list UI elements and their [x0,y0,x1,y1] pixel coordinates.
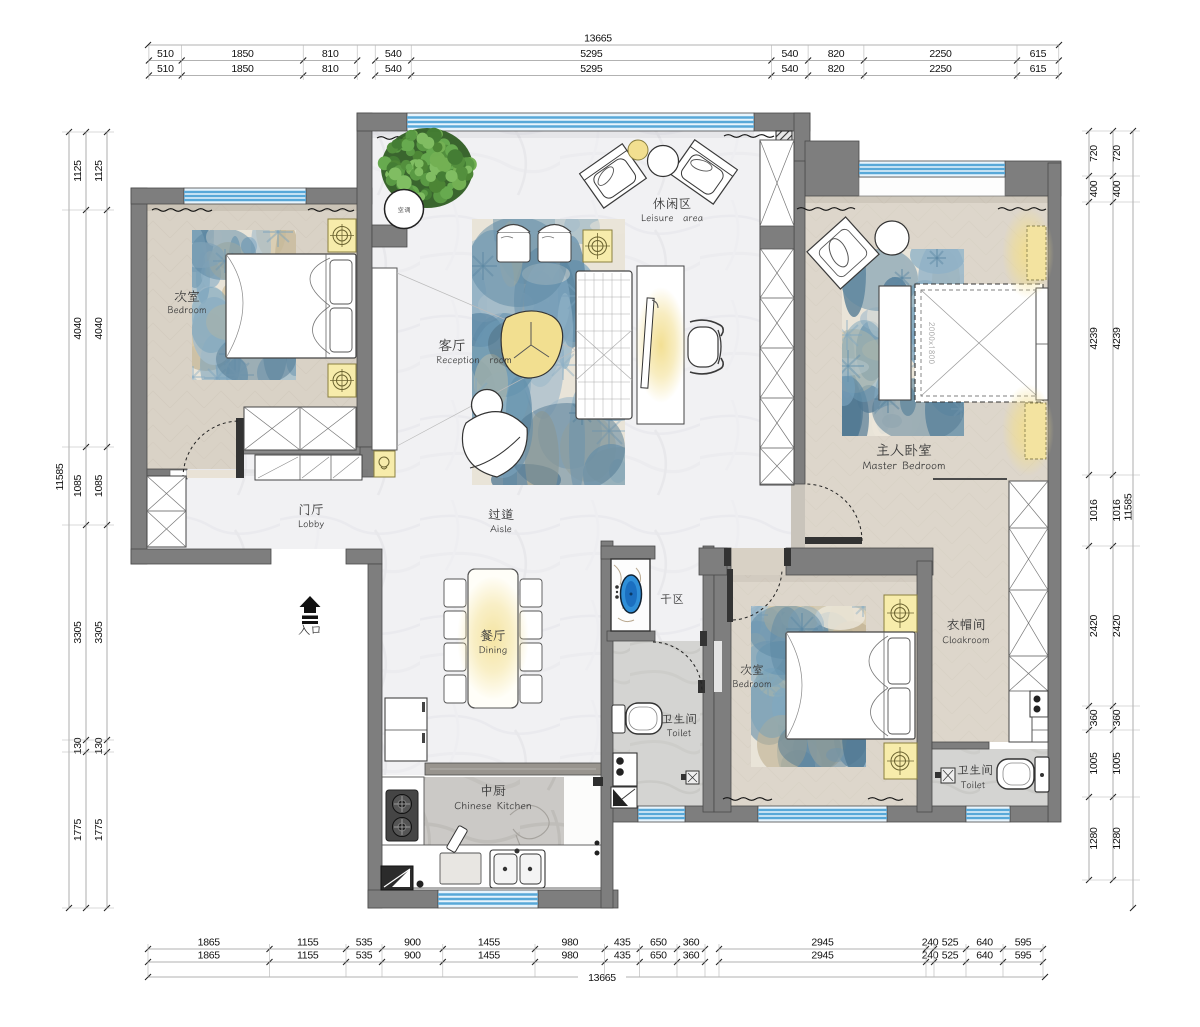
svg-text:720: 720 [1088,145,1100,162]
svg-text:595: 595 [1015,937,1032,949]
svg-text:1005: 1005 [1111,752,1123,775]
svg-text:640: 640 [976,937,993,949]
svg-text:435: 435 [614,937,631,949]
svg-text:435: 435 [614,950,631,962]
svg-text:1280: 1280 [1111,827,1123,850]
svg-text:1280: 1280 [1088,827,1100,850]
svg-text:980: 980 [562,950,579,962]
svg-text:240: 240 [922,950,939,962]
svg-text:3305: 3305 [72,621,84,644]
svg-text:360: 360 [1111,709,1123,726]
svg-text:2250: 2250 [929,48,952,60]
svg-text:510: 510 [157,48,174,60]
svg-text:595: 595 [1015,950,1032,962]
svg-text:1155: 1155 [297,950,319,962]
svg-text:640: 640 [976,950,993,962]
svg-text:615: 615 [1030,63,1047,75]
svg-text:1775: 1775 [93,818,105,841]
svg-text:1155: 1155 [297,937,319,949]
svg-text:400: 400 [1111,180,1123,197]
svg-text:5295: 5295 [580,63,603,75]
svg-text:2420: 2420 [1088,614,1100,637]
svg-text:3305: 3305 [93,621,105,644]
svg-text:360: 360 [683,937,700,949]
svg-text:1850: 1850 [231,48,254,60]
svg-text:240: 240 [922,937,939,949]
svg-text:1775: 1775 [72,818,84,841]
svg-text:2945: 2945 [811,937,834,949]
svg-text:535: 535 [356,950,373,962]
svg-text:2250: 2250 [929,63,952,75]
svg-text:650: 650 [650,950,667,962]
svg-text:540: 540 [385,63,402,75]
svg-text:1125: 1125 [72,160,84,182]
svg-text:615: 615 [1030,48,1047,60]
svg-text:820: 820 [828,63,845,75]
svg-text:1005: 1005 [1088,752,1100,775]
svg-text:4040: 4040 [93,317,105,340]
svg-text:1016: 1016 [1111,499,1123,522]
svg-text:1455: 1455 [478,937,501,949]
svg-text:4239: 4239 [1088,327,1100,350]
svg-text:360: 360 [1088,709,1100,726]
svg-text:650: 650 [650,937,667,949]
svg-text:1016: 1016 [1088,499,1100,522]
svg-text:11585: 11585 [54,463,66,490]
svg-text:2420: 2420 [1111,614,1123,637]
svg-text:535: 535 [356,937,373,949]
svg-text:820: 820 [828,48,845,60]
svg-text:2945: 2945 [811,950,834,962]
svg-text:1085: 1085 [93,474,105,497]
svg-text:525: 525 [942,950,959,962]
svg-text:540: 540 [781,48,798,60]
svg-text:1865: 1865 [198,937,221,949]
svg-text:400: 400 [1088,180,1100,197]
svg-text:1455: 1455 [478,950,501,962]
svg-text:1085: 1085 [72,474,84,497]
svg-text:510: 510 [157,63,174,75]
svg-text:720: 720 [1111,145,1123,162]
svg-text:360: 360 [683,950,700,962]
svg-text:13665: 13665 [584,33,612,45]
svg-text:980: 980 [562,937,579,949]
svg-text:540: 540 [781,63,798,75]
svg-text:810: 810 [322,48,339,60]
svg-text:540: 540 [385,48,402,60]
svg-text:5295: 5295 [580,48,603,60]
svg-text:4239: 4239 [1111,327,1123,350]
svg-text:900: 900 [404,937,421,949]
svg-text:13665: 13665 [588,972,616,984]
svg-text:900: 900 [404,950,421,962]
svg-text:525: 525 [942,937,959,949]
svg-text:11585: 11585 [1123,493,1135,520]
svg-text:1850: 1850 [231,63,254,75]
svg-text:1865: 1865 [198,950,221,962]
svg-text:4040: 4040 [72,317,84,340]
svg-text:810: 810 [322,63,339,75]
svg-text:1125: 1125 [93,160,105,182]
